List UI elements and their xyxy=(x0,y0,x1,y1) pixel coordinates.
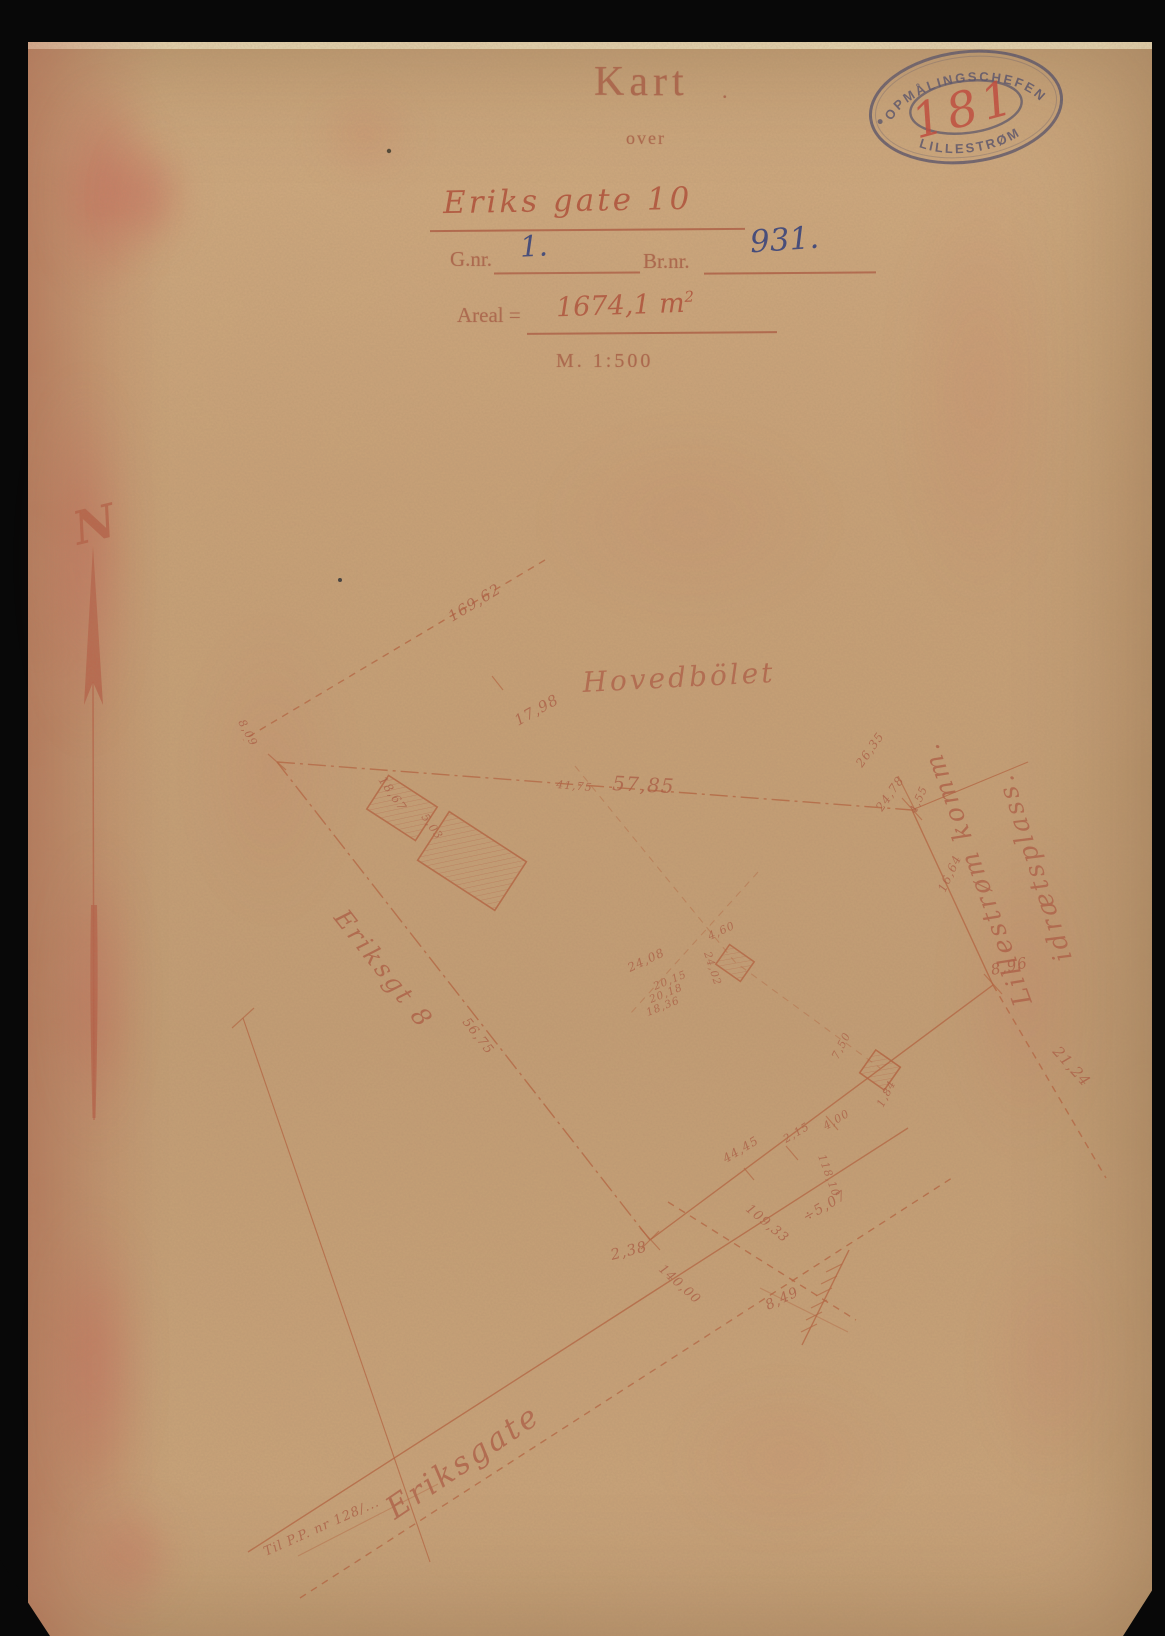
map-title: Kart xyxy=(594,58,689,106)
brnr-label: Br.nr. xyxy=(643,249,690,274)
gnr-value: 1. xyxy=(519,228,548,263)
map-title-dot: . xyxy=(722,78,728,104)
stain xyxy=(160,560,380,980)
paper-top-edge xyxy=(28,42,1152,49)
areal-value: 1674,1 m2 xyxy=(556,288,695,324)
scanned-map-document: Kart . over Eriks gate 10 G.nr. 1. Br.nr… xyxy=(0,0,1165,1636)
gnr-label: G.nr. xyxy=(450,247,492,272)
scale-label: M. 1:500 xyxy=(556,350,653,373)
stain xyxy=(95,110,205,280)
stain xyxy=(620,1340,950,1580)
stain xyxy=(55,1470,205,1636)
stain xyxy=(35,780,155,1210)
map-subtitle: over xyxy=(626,128,666,149)
street-name-entry: Eriks gate 10 xyxy=(443,181,693,221)
stain xyxy=(950,1180,1150,1540)
stain xyxy=(860,80,1100,700)
areal-label: Areal = xyxy=(457,303,521,328)
stain xyxy=(20,300,150,820)
stain xyxy=(290,70,440,200)
stain xyxy=(480,380,900,660)
stain xyxy=(920,760,1130,1220)
brnr-value: 931. xyxy=(749,220,820,261)
